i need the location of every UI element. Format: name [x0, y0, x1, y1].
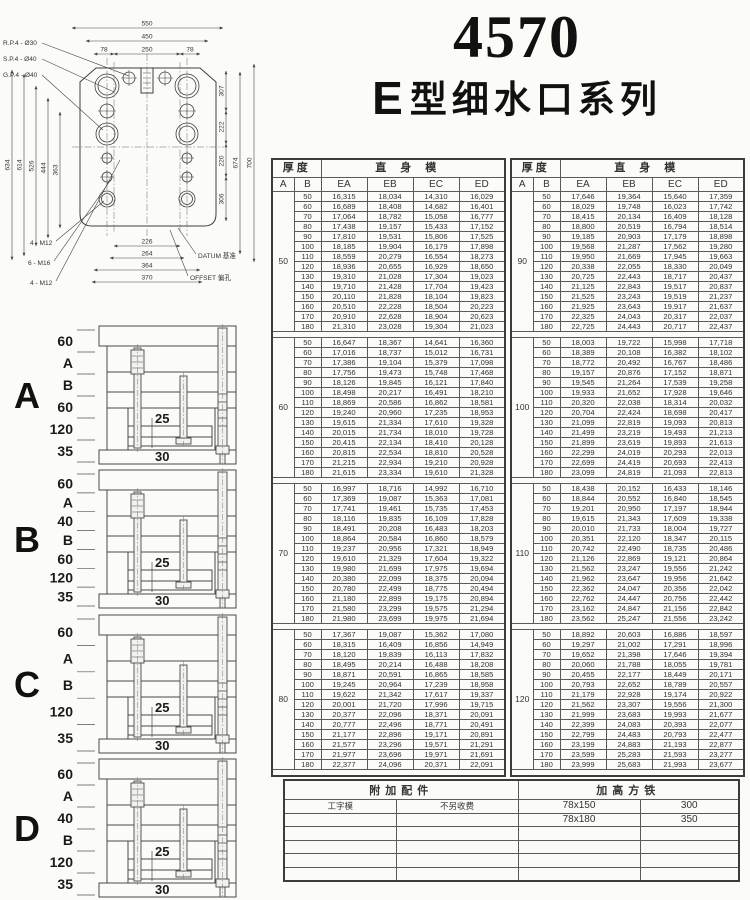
price-value: 15,379 [413, 358, 459, 368]
price-value: 21,213 [698, 428, 744, 438]
dim-label-35: 35 [57, 589, 73, 605]
table-row: 16022,29924,01920,29322,013 [511, 448, 744, 458]
table-row: 11019,62221,34217,61719,337 [272, 690, 505, 700]
col-header-b: B [533, 178, 560, 192]
price-value: 24,483 [606, 730, 652, 740]
price-value: 21,328 [459, 468, 505, 478]
price-value: 23,677 [698, 760, 744, 770]
price-value: 20,223 [459, 302, 505, 312]
dim-label-B: B [63, 377, 73, 393]
price-value: 20,437 [698, 272, 744, 282]
title-block: 4570 E型细水口系列 [292, 6, 742, 125]
price-value: 22,099 [367, 574, 413, 584]
thickness-b-value: 100 [294, 388, 321, 398]
thickness-b-value: 180 [294, 760, 321, 770]
price-value: 18,737 [367, 348, 413, 358]
price-value: 18,650 [459, 262, 505, 272]
price-value: 22,055 [606, 262, 652, 272]
thickness-b-value: 150 [533, 730, 560, 740]
price-value: 19,615 [560, 514, 606, 524]
price-value: 19,556 [652, 564, 698, 574]
table-row: 11020,74222,49018,73520,486 [511, 544, 744, 554]
price-value: 23,277 [698, 750, 744, 760]
block-spacer-row [511, 770, 744, 777]
table-row: 6019,29721,00217,29118,996 [511, 640, 744, 650]
price-value: 19,157 [367, 222, 413, 232]
table-row: 10020,35122,12018,34720,115 [511, 534, 744, 544]
price-value: 18,330 [652, 262, 698, 272]
thickness-b-value: 90 [533, 232, 560, 242]
price-value: 22,652 [606, 680, 652, 690]
price-value: 20,320 [560, 398, 606, 408]
price-value: 23,334 [367, 468, 413, 478]
table-row: 7019,65221,39817,64619,394 [511, 650, 744, 660]
price-value: 21,980 [321, 614, 367, 624]
price-value: 20,492 [606, 358, 652, 368]
thickness-b-value: 50 [294, 192, 321, 202]
price-value: 19,531 [367, 232, 413, 242]
table-row: 15020,11021,82818,10419,823 [272, 292, 505, 302]
price-value: 16,382 [652, 348, 698, 358]
thickness-b-value: 170 [294, 458, 321, 468]
price-value: 20,777 [321, 720, 367, 730]
price-value: 21,300 [698, 700, 744, 710]
price-value: 24,096 [367, 760, 413, 770]
table-row: 17022,32524,04320,31722,037 [511, 312, 744, 322]
dim-220: 220 [219, 155, 226, 166]
price-value: 17,468 [459, 368, 505, 378]
price-value: 17,828 [459, 514, 505, 524]
accessory-name [284, 867, 396, 881]
table-row: 12020,00121,72017,99619,715 [272, 700, 505, 710]
price-value: 20,591 [367, 670, 413, 680]
price-value: 14,682 [413, 202, 459, 212]
dim-700: 700 [247, 157, 254, 168]
price-value: 19,322 [459, 554, 505, 564]
table-row: 14020,77722,49618,77120,491 [272, 720, 505, 730]
price-value: 21,556 [652, 614, 698, 624]
price-value: 20,864 [698, 554, 744, 564]
price-value: 15,012 [413, 348, 459, 358]
table-row: 16020,81522,53418,81020,528 [272, 448, 505, 458]
price-value: 22,177 [606, 670, 652, 680]
thickness-b-value: 70 [294, 650, 321, 660]
price-value: 18,104 [413, 292, 459, 302]
price-value: 19,258 [698, 378, 744, 388]
col-header-ec: EC [413, 178, 459, 192]
thickness-b-value: 50 [294, 484, 321, 494]
accessory-row [284, 827, 739, 841]
thickness-b-value: 140 [533, 574, 560, 584]
price-value: 18,273 [459, 252, 505, 262]
price-value: 19,093 [652, 418, 698, 428]
thickness-b-value: 150 [294, 438, 321, 448]
table-row: 18021,98023,69919,97521,694 [272, 614, 505, 624]
price-value: 24,443 [606, 322, 652, 332]
price-value: 18,410 [413, 438, 459, 448]
accessory-note [396, 867, 518, 881]
col-header-eb: EB [367, 178, 413, 192]
price-value: 19,245 [321, 680, 367, 690]
price-value: 22,096 [367, 710, 413, 720]
price-value: 18,371 [413, 710, 459, 720]
price-value: 20,393 [652, 720, 698, 730]
table-row: 905017,64619,36415,64017,359 [511, 192, 744, 202]
dim-label-A: A [63, 651, 73, 667]
price-value: 22,628 [367, 312, 413, 322]
leader-m12b-label: 4 - M12 [30, 280, 53, 287]
price-value: 16,554 [413, 252, 459, 262]
price-value: 17,898 [459, 242, 505, 252]
price-table: 厚度直身模ABEAEBECED905017,64619,36415,64017,… [510, 158, 745, 777]
price-value: 18,581 [459, 398, 505, 408]
table-row: 8019,61521,34317,60919,338 [511, 514, 744, 524]
price-value: 23,242 [698, 614, 744, 624]
table-row: 9018,49120,20816,48318,203 [272, 524, 505, 534]
price-value: 19,781 [698, 660, 744, 670]
table-row: 12019,61021,32917,60419,322 [272, 554, 505, 564]
table-row: 6018,38920,10816,38218,102 [511, 348, 744, 358]
price-value: 18,146 [698, 484, 744, 494]
table-row: 6018,02919,74816,02317,742 [511, 202, 744, 212]
table-row: 7017,74119,46115,73517,453 [272, 504, 505, 514]
price-value: 19,201 [560, 504, 606, 514]
price-value: 21,993 [652, 760, 698, 770]
price-value: 21,334 [367, 418, 413, 428]
price-value: 19,310 [321, 272, 367, 282]
thickness-b-value: 180 [533, 614, 560, 624]
price-value: 19,210 [413, 458, 459, 468]
table-row: 12020,33822,05518,33020,049 [511, 262, 744, 272]
price-value: 19,694 [459, 564, 505, 574]
price-value: 20,015 [321, 428, 367, 438]
price-value: 21,613 [698, 438, 744, 448]
price-value: 17,359 [698, 192, 744, 202]
price-value: 22,377 [321, 760, 367, 770]
price-value: 18,208 [459, 660, 505, 670]
thickness-b-value: 70 [294, 504, 321, 514]
accessory-note [396, 813, 518, 827]
price-value: 18,996 [698, 640, 744, 650]
table-row: 10019,93321,65217,92819,646 [511, 388, 744, 398]
price-value: 25,283 [606, 750, 652, 760]
table-row: 12019,24020,96017,23518,953 [272, 408, 505, 418]
thickness-a-value: 120 [511, 630, 533, 770]
price-value: 16,860 [413, 534, 459, 544]
dim-label-120: 120 [50, 703, 74, 719]
page-title-series: E型细水口系列 [292, 69, 742, 125]
price-value: 23,643 [606, 302, 652, 312]
price-value: 16,865 [413, 670, 459, 680]
price-value: 15,363 [413, 494, 459, 504]
thickness-b-value: 120 [294, 408, 321, 418]
price-value: 17,386 [321, 358, 367, 368]
price-value: 16,109 [413, 514, 459, 524]
price-value: 21,733 [606, 524, 652, 534]
thickness-b-value: 90 [533, 524, 560, 534]
thickness-header: 厚度 [511, 159, 560, 178]
dim-550: 550 [141, 21, 152, 28]
thickness-b-value: 80 [294, 368, 321, 378]
price-value: 16,689 [321, 202, 367, 212]
price-value: 19,622 [321, 690, 367, 700]
price-value: 18,128 [698, 212, 744, 222]
table-row: 7018,12019,83916,11317,832 [272, 650, 505, 660]
price-value: 20,317 [652, 312, 698, 322]
price-value: 19,839 [367, 650, 413, 660]
price-value: 22,413 [698, 458, 744, 468]
table-row: 13019,98021,69917,97519,694 [272, 564, 505, 574]
table-row: 1005018,00319,72215,99817,718 [511, 338, 744, 348]
price-value: 21,694 [459, 614, 505, 624]
thickness-b-value: 180 [294, 614, 321, 624]
riser-size [518, 827, 640, 841]
thickness-header: 厚度 [272, 159, 321, 178]
price-value: 20,815 [321, 448, 367, 458]
table-row: 10019,56821,28717,56219,280 [511, 242, 744, 252]
thickness-b-value: 130 [294, 710, 321, 720]
price-value: 20,208 [367, 524, 413, 534]
price-value: 20,552 [606, 494, 652, 504]
col-header-ec: EC [652, 178, 698, 192]
thickness-b-value: 60 [294, 494, 321, 504]
price-value: 21,180 [321, 594, 367, 604]
dim-label-35: 35 [57, 730, 73, 746]
dim-264: 264 [141, 251, 152, 258]
price-value: 20,115 [698, 534, 744, 544]
riser-size [518, 867, 640, 881]
table-row: 17021,21522,93419,21020,928 [272, 458, 505, 468]
price-value: 19,493 [652, 428, 698, 438]
table-row: 11018,55920,27916,55418,273 [272, 252, 505, 262]
table-row: 11018,86920,58616,86218,581 [272, 398, 505, 408]
mold-diagram-b: 2530B60A40B6012035 [4, 464, 256, 610]
price-value: 14,641 [413, 338, 459, 348]
dim-label-120: 120 [50, 854, 74, 870]
price-value: 20,171 [698, 670, 744, 680]
price-value: 18,415 [560, 212, 606, 222]
price-value: 17,291 [652, 640, 698, 650]
price-value: 20,091 [459, 710, 505, 720]
price-value: 17,718 [698, 338, 744, 348]
price-value: 21,615 [321, 468, 367, 478]
price-value: 19,394 [698, 650, 744, 660]
price-value: 21,525 [560, 292, 606, 302]
price-value: 24,083 [606, 720, 652, 730]
thickness-a-value: 90 [511, 192, 533, 332]
col-header-b: B [294, 178, 321, 192]
riser-height [640, 827, 739, 841]
table-row: 17020,91022,62818,90420,623 [272, 312, 505, 322]
price-value: 19,652 [560, 650, 606, 660]
price-value: 15,806 [413, 232, 459, 242]
price-value: 22,228 [367, 302, 413, 312]
price-value: 19,904 [367, 242, 413, 252]
price-value: 17,438 [321, 222, 367, 232]
thickness-b-value: 170 [533, 458, 560, 468]
price-value: 20,049 [698, 262, 744, 272]
price-value: 18,029 [560, 202, 606, 212]
thickness-b-value: 140 [294, 282, 321, 292]
accessory-note: 不另收费 [396, 800, 518, 814]
price-value: 21,577 [321, 740, 367, 750]
table-row: 17021,58023,29919,57521,294 [272, 604, 505, 614]
thickness-b-value: 110 [533, 398, 560, 408]
price-value: 19,297 [560, 640, 606, 650]
straight-mold-header: 直身模 [560, 159, 744, 178]
price-value: 22,443 [606, 272, 652, 282]
price-value: 19,304 [413, 322, 459, 332]
price-value: 20,108 [606, 348, 652, 358]
table-row: 18023,99925,68321,99323,677 [511, 760, 744, 770]
table-row: 11020,32022,03818,31420,032 [511, 398, 744, 408]
price-value: 20,584 [367, 534, 413, 544]
price-value: 19,956 [652, 574, 698, 584]
price-value: 17,369 [321, 494, 367, 504]
price-value: 23,199 [560, 740, 606, 750]
leader-lines [42, 43, 196, 281]
price-value: 19,023 [459, 272, 505, 282]
price-value: 20,356 [652, 584, 698, 594]
thickness-b-value: 140 [294, 574, 321, 584]
dim-label-60: 60 [57, 551, 73, 567]
table-row: 8019,15720,87617,15218,871 [511, 368, 744, 378]
price-value: 18,772 [560, 358, 606, 368]
thickness-b-value: 80 [533, 222, 560, 232]
thickness-b-value: 160 [533, 740, 560, 750]
price-value: 17,525 [459, 232, 505, 242]
mold-plates [99, 759, 236, 897]
table-row: 12021,12622,86919,12120,864 [511, 554, 744, 564]
price-value: 16,777 [459, 212, 505, 222]
price-value: 18,716 [367, 484, 413, 494]
price-value: 22,725 [560, 322, 606, 332]
price-value: 19,610 [321, 554, 367, 564]
price-value: 20,371 [413, 760, 459, 770]
price-value: 18,871 [321, 670, 367, 680]
table-row: 8020,06021,78818,05519,781 [511, 660, 744, 670]
table-row: 16020,51022,22818,50420,223 [272, 302, 505, 312]
price-value: 23,599 [560, 750, 606, 760]
price-value: 23,619 [606, 438, 652, 448]
price-value: 17,810 [321, 232, 367, 242]
price-value: 16,840 [652, 494, 698, 504]
price-value: 18,375 [413, 574, 459, 584]
thickness-b-value: 100 [533, 680, 560, 690]
table-row: 9018,12619,84516,12117,840 [272, 378, 505, 388]
thickness-b-value: 50 [533, 192, 560, 202]
price-value: 18,003 [560, 338, 606, 348]
thickness-b-value: 150 [294, 292, 321, 302]
col-header-ed: ED [698, 178, 744, 192]
table-row: 505016,31518,03414,31016,029 [272, 192, 505, 202]
price-value: 20,214 [367, 660, 413, 670]
price-value: 22,490 [606, 544, 652, 554]
price-value: 17,367 [321, 630, 367, 640]
price-value: 21,562 [560, 564, 606, 574]
price-value: 22,499 [367, 584, 413, 594]
price-value: 17,610 [413, 418, 459, 428]
dim-label-40: 40 [57, 810, 73, 826]
dim-label-35: 35 [57, 443, 73, 459]
thickness-b-value: 150 [294, 584, 321, 594]
price-value: 19,993 [652, 710, 698, 720]
datum-label: DATUM 基准 [198, 251, 236, 260]
price-value: 20,094 [459, 574, 505, 584]
price-value: 16,315 [321, 192, 367, 202]
table-row: 7017,38619,10415,37917,098 [272, 358, 505, 368]
thickness-b-value: 110 [533, 690, 560, 700]
price-value: 20,217 [367, 388, 413, 398]
price-value: 20,279 [367, 252, 413, 262]
thickness-b-value: 130 [533, 710, 560, 720]
thickness-b-value: 90 [533, 378, 560, 388]
price-value: 24,019 [606, 448, 652, 458]
dim-222: 222 [219, 121, 226, 132]
thickness-b-value: 90 [294, 378, 321, 388]
thickness-b-value: 110 [294, 690, 321, 700]
price-value: 22,899 [367, 594, 413, 604]
price-value: 18,389 [560, 348, 606, 358]
price-value: 21,028 [367, 272, 413, 282]
table-row: 10018,49820,21716,49118,210 [272, 388, 505, 398]
price-value: 15,433 [413, 222, 459, 232]
table-row: 18021,31023,02819,30421,023 [272, 322, 505, 332]
table-row: 14020,01521,73418,01019,728 [272, 428, 505, 438]
dim-614: 614 [17, 159, 24, 170]
price-value: 20,152 [606, 484, 652, 494]
price-value: 18,775 [413, 584, 459, 594]
leader-sp-label: S.P.4 - Ø40 [3, 56, 37, 63]
price-value: 21,652 [606, 388, 652, 398]
table-row: 14021,12522,84319,51720,837 [511, 282, 744, 292]
mold-diagram-d: 2530D60A40B12035 [4, 753, 256, 899]
price-value: 14,949 [459, 640, 505, 650]
thickness-b-value: 60 [533, 202, 560, 212]
dim-226: 226 [141, 239, 152, 246]
price-value: 16,731 [459, 348, 505, 358]
price-value: 18,844 [560, 494, 606, 504]
table-row: 8018,80020,51916,79418,514 [511, 222, 744, 232]
col-header-a: A [511, 178, 533, 192]
price-value: 16,767 [652, 358, 698, 368]
riser-size: 78x180 [518, 813, 640, 827]
price-value: 21,925 [560, 302, 606, 312]
price-value: 17,304 [413, 272, 459, 282]
dim-label-35: 35 [57, 876, 73, 892]
thickness-b-value: 150 [533, 292, 560, 302]
thickness-b-value: 170 [294, 750, 321, 760]
price-value: 21,237 [698, 292, 744, 302]
price-value: 20,756 [652, 594, 698, 604]
price-value: 17,617 [413, 690, 459, 700]
price-value: 21,093 [652, 468, 698, 478]
accessory-name [284, 854, 396, 868]
price-value: 15,735 [413, 504, 459, 514]
thickness-b-value: 180 [533, 468, 560, 478]
price-value: 22,091 [459, 760, 505, 770]
accessory-note [396, 854, 518, 868]
thickness-b-value: 110 [294, 398, 321, 408]
price-value: 19,545 [560, 378, 606, 388]
series-text: 型细水口系列 [410, 80, 662, 121]
price-value: 19,087 [367, 494, 413, 504]
price-value: 22,799 [560, 730, 606, 740]
price-value: 21,899 [560, 438, 606, 448]
mold-section-drawing: 2530B60A40B6012035 [4, 464, 256, 610]
inner-dim-30: 30 [155, 882, 169, 897]
table-row: 14020,38022,09918,37520,094 [272, 574, 505, 584]
